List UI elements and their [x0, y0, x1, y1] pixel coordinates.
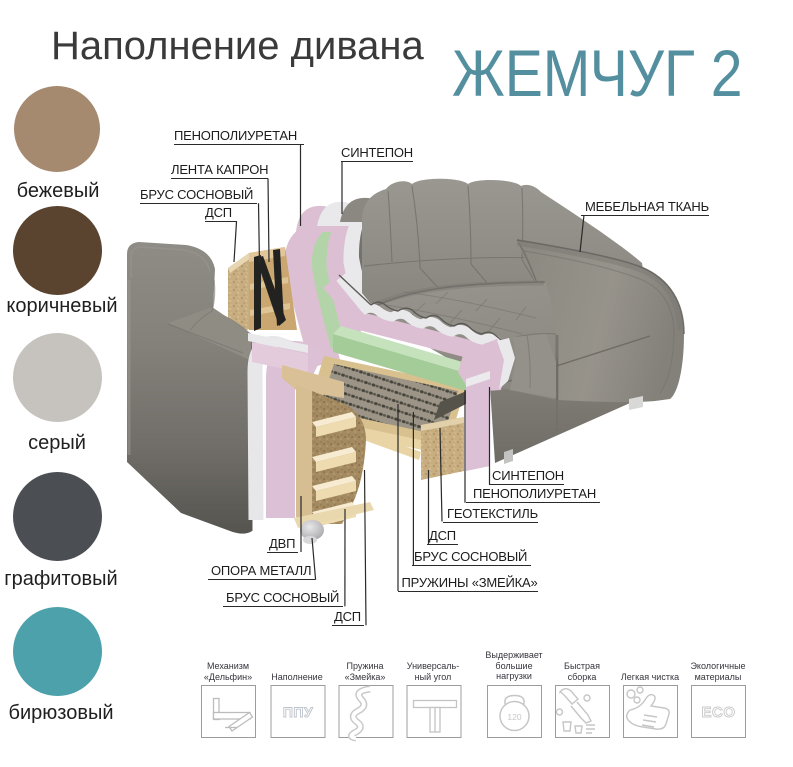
svg-text:ППУ: ППУ	[283, 704, 313, 720]
svg-text:120: 120	[507, 712, 521, 722]
svg-text:ECO: ECO	[701, 704, 735, 721]
